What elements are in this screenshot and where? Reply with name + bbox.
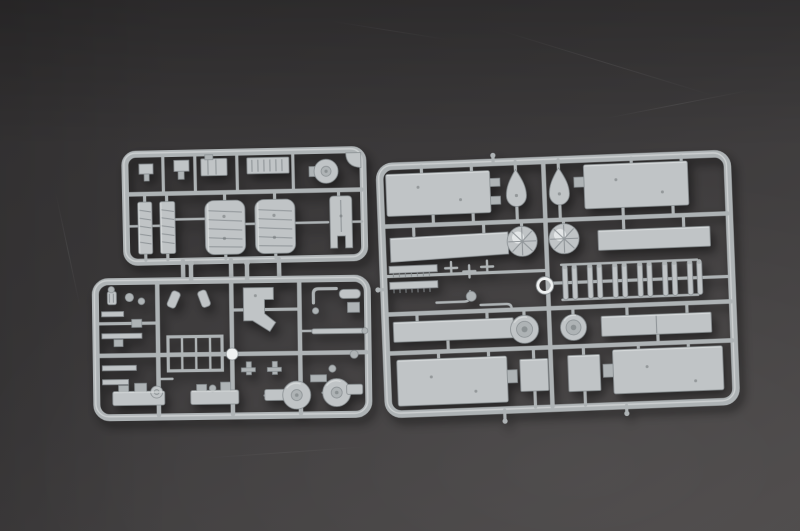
part-shield-ventilator (548, 160, 570, 206)
part-winch-drum (309, 159, 338, 184)
part-shield-ventilator (505, 161, 527, 207)
sprue-lower-left (87, 256, 379, 428)
part-hull-panel-large (397, 356, 519, 407)
part-clamp-rings (125, 293, 145, 305)
part-hull-panel-large (602, 346, 724, 395)
part-fitting-small (174, 160, 189, 179)
part-bracket-small (139, 164, 153, 181)
part-cylinder-fitting (339, 289, 360, 312)
part-deckhouse-block (520, 358, 549, 391)
shiny-runner-node (226, 348, 238, 360)
part-dome-faceted (549, 223, 580, 254)
part-ladder-strip (160, 201, 176, 253)
part-ribbed-hatch-panel (255, 199, 296, 254)
part-grated-plate (247, 157, 289, 174)
part-angled-foot (166, 289, 211, 309)
part-turret-ring (510, 315, 539, 344)
surface-scratch (331, 21, 450, 41)
sprue-right (371, 145, 745, 431)
part-ribbed-hatch-panel (205, 200, 246, 255)
part-deckhouse-block (568, 354, 601, 391)
surface-scratch (495, 28, 715, 96)
part-deck-strip (601, 312, 712, 336)
part-forked-hull-piece (330, 196, 353, 248)
part-deck-panel-large (386, 170, 502, 216)
part-pipe-elbow (312, 289, 337, 315)
part-deck-panel-large (573, 161, 689, 209)
surface-scratch (200, 446, 370, 459)
part-turret-ring (560, 314, 587, 341)
surface-scratch (55, 192, 81, 310)
part-lattice-frame (168, 336, 222, 371)
surface-scratch (603, 90, 750, 120)
part-blower-fan (323, 378, 363, 407)
part-serrated-strip (389, 265, 438, 294)
shiny-ring (536, 276, 554, 294)
part-corner-gusset (346, 153, 361, 168)
part-deck-strip (598, 226, 711, 250)
part-machinery-assembly (113, 383, 165, 406)
part-blower-fan (265, 381, 311, 410)
part-detail-box (201, 154, 227, 176)
part-deck-strip (390, 232, 509, 263)
part-long-rod (312, 328, 368, 335)
photo-model-kit-sprues (0, 0, 800, 531)
part-knurled-cylinder (107, 286, 116, 304)
part-deck-strip (393, 318, 514, 343)
part-ladder-strip (138, 202, 153, 254)
part-dome-faceted (507, 226, 538, 257)
